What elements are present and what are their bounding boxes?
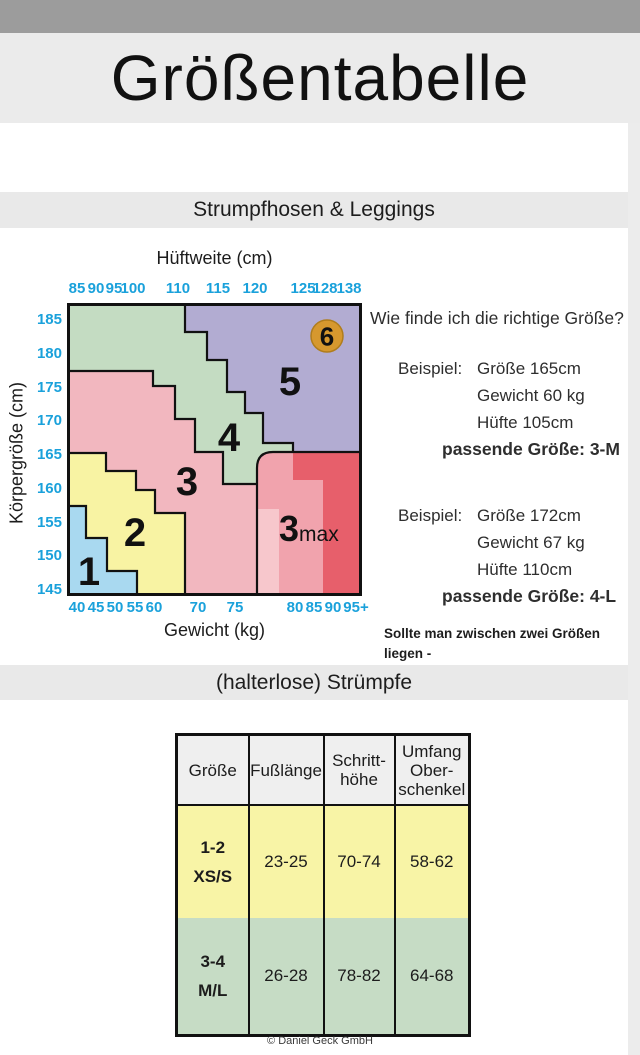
size-cell: 1-2 XS/S	[177, 805, 249, 918]
example-1-result: passende Größe: 3-M	[442, 439, 636, 460]
table-row-m-l: 3-4 M/L 26-28 78-82 64-68	[177, 918, 470, 1036]
example-2-height: Größe 172cm	[477, 502, 585, 529]
height-tick: 145	[28, 581, 62, 598]
section-header-tights: Strumpfhosen & Leggings	[0, 192, 628, 228]
region-5-label: 5	[279, 360, 301, 404]
example-1-height: Größe 165cm	[477, 355, 585, 382]
weight-tick: 95+	[343, 599, 368, 616]
height-tick: 170	[28, 412, 62, 429]
umfang-cell: 58-62	[395, 805, 470, 918]
section-header-tights-label: Strumpfhosen & Leggings	[193, 198, 435, 222]
schritthoehe-cell: 70-74	[324, 805, 395, 918]
example-1-values: Größe 165cm Gewicht 60 kg Hüfte 105cm	[477, 355, 585, 436]
hip-tick: 85	[69, 280, 86, 297]
example-2: Beispiel: Größe 172cm Gewicht 67 kg Hüft…	[370, 502, 636, 583]
weight-tick: 90	[325, 599, 342, 616]
weight-tick: 45	[88, 599, 105, 616]
height-tick: 180	[28, 345, 62, 362]
weight-axis-title: Gewicht (kg)	[67, 620, 362, 641]
height-tick: 185	[28, 311, 62, 328]
weight-tick: 80	[287, 599, 304, 616]
weight-tick: 70	[190, 599, 207, 616]
hip-tick: 120	[242, 280, 267, 297]
height-tick: 160	[28, 480, 62, 497]
region-2-label: 2	[124, 511, 146, 555]
region-6-label: 6	[320, 322, 334, 352]
example-2-result: passende Größe: 4-L	[442, 586, 636, 607]
size-help-block: Wie finde ich die richtige Größe? Beispi…	[370, 308, 636, 704]
fusslaenge-cell: 26-28	[249, 918, 324, 1036]
example-1: Beispiel: Größe 165cm Gewicht 60 kg Hüft…	[370, 355, 636, 436]
hip-tick: 110	[166, 280, 190, 297]
region-3max-light	[257, 509, 279, 596]
page-title: Größentabelle	[111, 41, 530, 115]
example-1-hip: Hüfte 105cm	[477, 409, 585, 436]
region-4-label: 4	[218, 416, 241, 460]
hip-tick: 90	[88, 280, 105, 297]
stockings-size-table: Größe Fußlänge Schritt- höhe Umfang Ober…	[175, 733, 471, 1037]
umfang-cell: 64-68	[395, 918, 470, 1036]
hip-axis-title: Hüftweite (cm)	[67, 248, 362, 269]
height-tick: 150	[28, 547, 62, 564]
example-1-label: Beispiel:	[398, 355, 462, 436]
help-question: Wie finde ich die richtige Größe?	[370, 308, 636, 329]
weight-tick: 55	[127, 599, 144, 616]
table-header-row: Größe Fußlänge Schritt- höhe Umfang Ober…	[177, 735, 470, 806]
copyright-footer: © Daniel Geck GmbH	[0, 1035, 640, 1047]
weight-tick: 85	[306, 599, 323, 616]
section-header-stockings: (halterlose) Strümpfe	[0, 665, 628, 700]
size-cell: 3-4 M/L	[177, 918, 249, 1036]
hip-tick: 100	[120, 280, 145, 297]
height-tick: 165	[28, 446, 62, 463]
height-tick: 175	[28, 379, 62, 396]
weight-tick: 50	[107, 599, 124, 616]
col-header-umfang: Umfang Ober- schenkel	[395, 735, 470, 806]
weight-tick: 75	[227, 599, 244, 616]
example-2-values: Größe 172cm Gewicht 67 kg Hüfte 110cm	[477, 502, 585, 583]
region-1-label: 1	[78, 550, 100, 594]
example-2-weight: Gewicht 67 kg	[477, 529, 585, 556]
region-3-label: 3	[176, 460, 198, 504]
weight-tick: 40	[69, 599, 86, 616]
hip-tick: 128	[312, 280, 337, 297]
title-band: Größentabelle	[0, 33, 640, 123]
height-axis-title: Körpergröße (cm)	[7, 353, 28, 553]
schritthoehe-cell: 78-82	[324, 918, 395, 1036]
size-region-chart: 1 2 3 4 5 6 3max	[67, 303, 362, 596]
example-2-hip: Hüfte 110cm	[477, 556, 585, 583]
table-row-xs-s: 1-2 XS/S 23-25 70-74 58-62	[177, 805, 470, 918]
section-header-stockings-label: (halterlose) Strümpfe	[216, 671, 412, 695]
hip-tick: 115	[206, 280, 230, 297]
col-header-groesse: Größe	[177, 735, 249, 806]
col-header-schritthoehe: Schritt- höhe	[324, 735, 395, 806]
height-tick: 155	[28, 514, 62, 531]
hip-tick: 138	[336, 280, 361, 297]
weight-tick: 60	[146, 599, 163, 616]
fusslaenge-cell: 23-25	[249, 805, 324, 918]
col-header-fusslaenge: Fußlänge	[249, 735, 324, 806]
top-gray-bar	[0, 0, 640, 33]
example-2-label: Beispiel:	[398, 502, 462, 583]
example-1-weight: Gewicht 60 kg	[477, 382, 585, 409]
